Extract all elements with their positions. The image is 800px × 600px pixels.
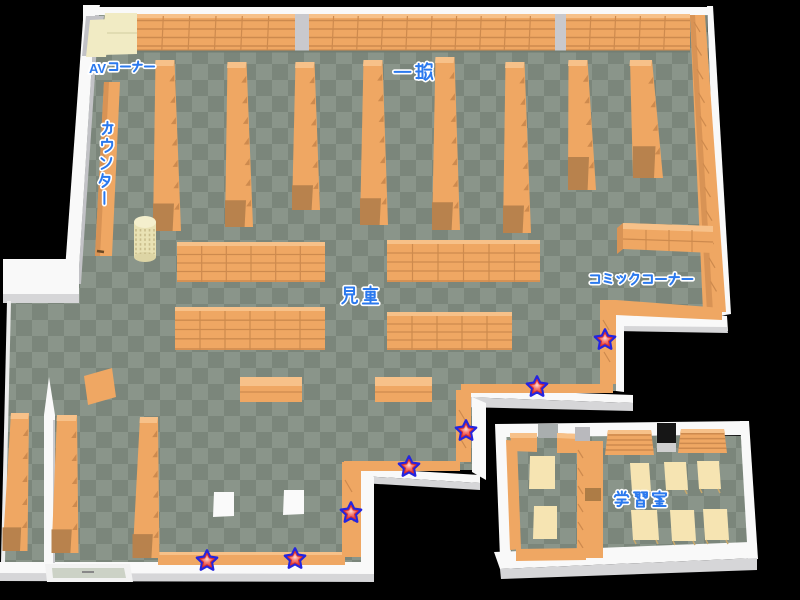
svg-text:AV: AV: [89, 61, 106, 76]
